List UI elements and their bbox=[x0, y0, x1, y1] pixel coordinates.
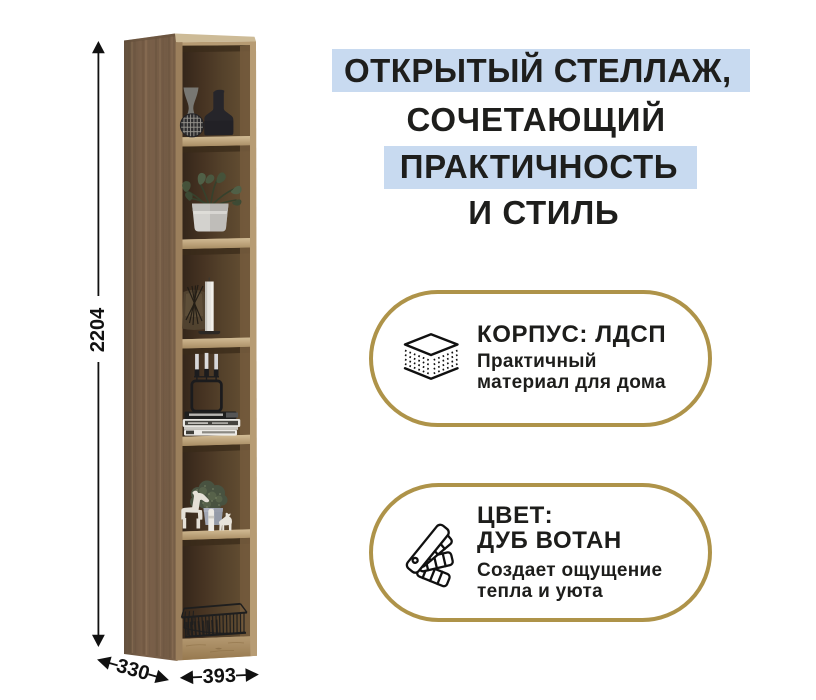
svg-text:2204: 2204 bbox=[87, 307, 109, 352]
svg-text:393: 393 bbox=[202, 665, 236, 688]
svg-text:330: 330 bbox=[114, 655, 152, 685]
